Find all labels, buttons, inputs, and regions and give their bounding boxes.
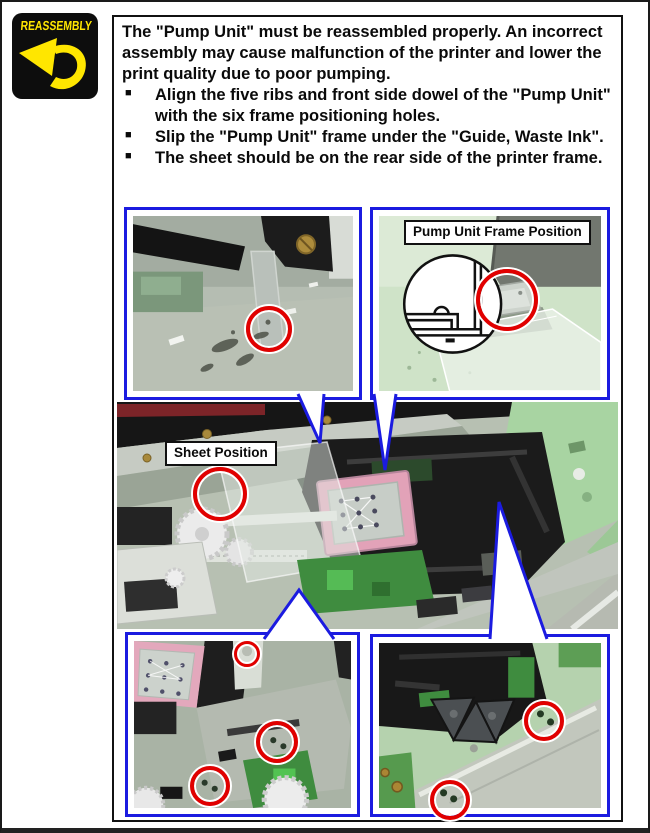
highlight-circle-pin-right-1 [524, 701, 564, 741]
reassembly-note-box: The "Pump Unit" must be reassembled prop… [112, 15, 623, 822]
photo-pump-pins-closeup [370, 634, 610, 817]
highlight-circle-pin-right-2 [430, 780, 470, 820]
sheet-position-label: Sheet Position [165, 441, 277, 466]
printer-overview-illustration [117, 402, 618, 629]
rib-dowel-illustration [133, 216, 353, 391]
pump-frame-position-label: Pump Unit Frame Position [404, 220, 591, 245]
highlight-circle-pin-left-1 [256, 721, 298, 763]
figures-area: Pump Unit Frame Position Sheet Position [114, 17, 621, 820]
reassembly-badge: REASSEMBLY [12, 13, 98, 99]
highlight-circle-pin-left-2 [190, 766, 230, 806]
photo-rib-dowel-closeup [124, 207, 362, 400]
manual-page: REASSEMBLY The "Pump Unit" must be reass… [0, 0, 650, 833]
photo-printer-overview [117, 402, 618, 629]
highlight-circle-frame-tab [476, 269, 538, 331]
highlight-circle-post-hole [234, 641, 260, 667]
reassembly-badge-label: REASSEMBLY [20, 18, 90, 33]
highlight-circle-sheet [193, 467, 247, 521]
highlight-circle-rib [246, 306, 292, 352]
undo-arrow-icon [12, 33, 98, 99]
pump-pins-illustration [379, 643, 601, 808]
